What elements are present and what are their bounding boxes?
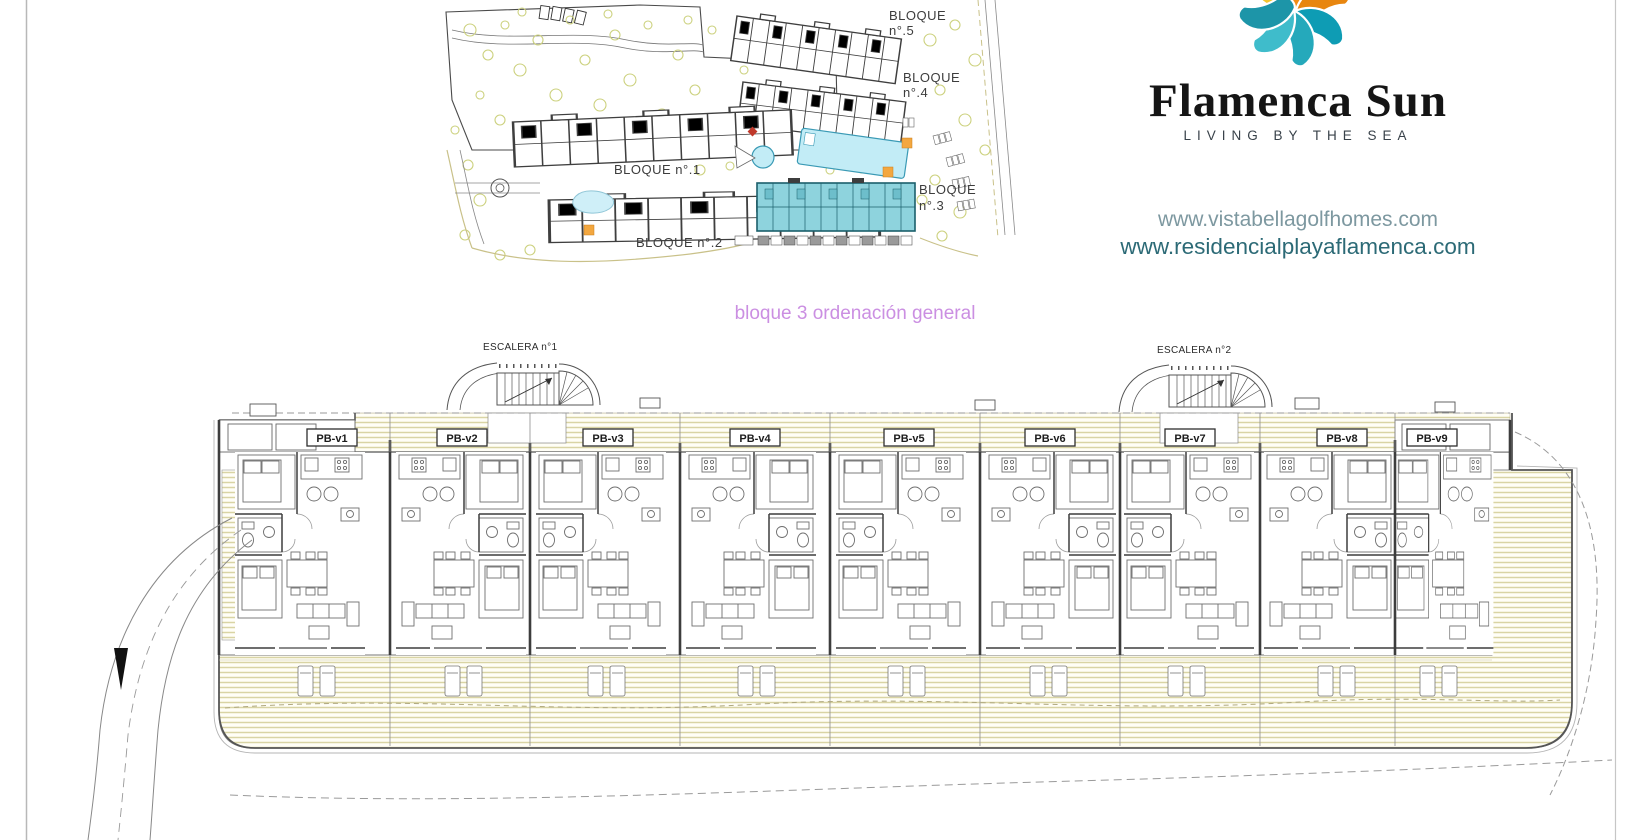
bloque3-label: BLOQUE — [919, 182, 976, 197]
orange-marker-icon — [584, 225, 594, 235]
boundary-dashed-bottom — [230, 760, 1612, 799]
bloque2-label: BLOQUE n°.2 — [636, 235, 723, 250]
bloque4-label: n°.4 — [903, 85, 928, 100]
plan-caption: bloque 3 ordenación general — [660, 303, 1050, 325]
bloque-5-building — [731, 11, 902, 84]
orange-marker-icon — [902, 138, 912, 148]
bloque1-label: BLOQUE n°.1 — [614, 162, 701, 177]
unit-label: PB-v3 — [592, 433, 623, 445]
direction-arrow-icon — [114, 648, 128, 690]
orange-marker-icon — [883, 167, 893, 177]
plan-page: BLOQUE n°.5 BLOQUE n°.4 BLOQUE n°.1 BLOQ… — [0, 0, 1638, 840]
unit-label: PB-v9 — [1416, 433, 1447, 445]
unit-label: PB-v6 — [1034, 433, 1065, 445]
floor-plan: ESCALERA n°1 ESCALERA n°2 — [88, 342, 1612, 840]
unit-label: PB-v8 — [1326, 433, 1357, 445]
url-vistabellagolfhomes[interactable]: www.vistabellagolfhomes.com — [1060, 208, 1536, 232]
bloque4-label: BLOQUE — [903, 70, 960, 85]
escalera-1 — [447, 363, 600, 410]
bloque-3-building-highlighted — [757, 178, 915, 231]
site-plan: BLOQUE n°.5 BLOQUE n°.4 BLOQUE n°.1 BLOQ… — [446, 0, 1015, 262]
garage-entries — [539, 6, 586, 25]
unit-label: PB-v1 — [316, 433, 347, 445]
url-residencialplayaflamenca[interactable]: www.residencialplayaflamenca.com — [1060, 234, 1536, 260]
escalera2-label: ESCALERA n°2 — [1157, 345, 1231, 356]
unit-label: PB-v5 — [893, 433, 924, 445]
brand-name: Flamenca Sun — [1100, 74, 1496, 128]
bloque5-label: BLOQUE — [889, 8, 946, 23]
parking-strip — [735, 236, 912, 245]
brand-tagline: LIVING BY THE SEA — [1100, 128, 1496, 143]
bloque5-label: n°.5 — [889, 23, 914, 38]
escalera1-label: ESCALERA n°1 — [483, 342, 557, 353]
unit-label: PB-v2 — [446, 433, 477, 445]
flamenca-sun-logo — [1233, 0, 1357, 74]
unit-label: PB-v7 — [1174, 433, 1205, 445]
escalera-2 — [1119, 365, 1272, 412]
apartment-interiors — [235, 452, 1493, 655]
unit-label: PB-v4 — [739, 433, 771, 445]
bloque3-label: n°.3 — [919, 198, 944, 213]
